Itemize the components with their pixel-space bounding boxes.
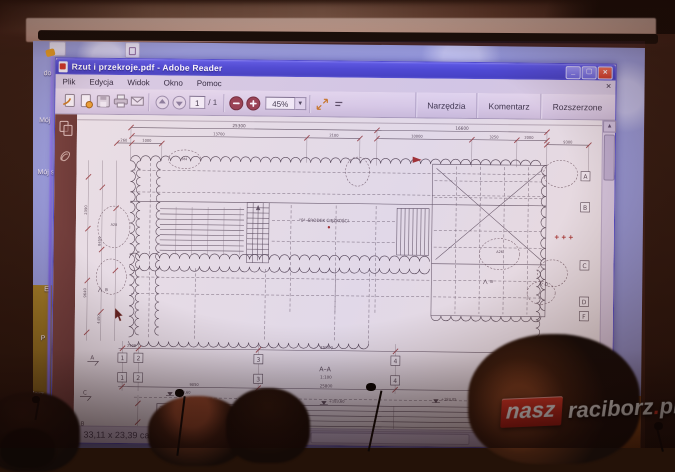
grid-number: 2: [136, 375, 140, 382]
cloud-note: M4: [182, 157, 187, 161]
microphone-head: [175, 389, 184, 397]
dim: 25800: [320, 345, 333, 350]
audience-head: [226, 388, 310, 463]
fit-page-icon[interactable]: [314, 95, 331, 112]
maximize-button[interactable]: ▢: [582, 66, 597, 79]
dim: 260: [120, 138, 128, 142]
print-icon[interactable]: [111, 93, 128, 110]
desktop-icon[interactable]: [125, 42, 140, 58]
level-mark: +183,60: [329, 399, 345, 403]
window-title: Rzut i przekroje.pdf - Adobe Reader: [72, 61, 223, 73]
watermark-raciborz: raciborz: [567, 394, 654, 424]
cloud-note: A28: [111, 223, 118, 227]
inner-mark: B: [490, 279, 493, 284]
grid-number: 1: [120, 375, 124, 382]
dim: 8450: [98, 236, 102, 246]
photo-of-projection: { "logo": {"nasz": "nasz", "raciborz": "…: [0, 0, 675, 448]
zoom-dropdown-button[interactable]: ▼: [295, 97, 306, 110]
grid-number: 3: [256, 376, 260, 383]
microphone-head: [654, 422, 663, 430]
dim: 16600: [455, 126, 469, 132]
page-number-input[interactable]: 1: [189, 96, 205, 109]
cloud-note: A26: [496, 250, 503, 254]
inner-mark: B: [105, 287, 108, 292]
zoom-in-icon[interactable]: [245, 94, 262, 111]
grid-letter: C: [582, 263, 586, 270]
next-page-icon[interactable]: [170, 94, 187, 111]
desktop-icon-label[interactable]: do: [44, 70, 52, 77]
grid-number: 4: [393, 358, 397, 365]
hide-toolbar-icon[interactable]: ✕: [606, 82, 612, 90]
convert-icon[interactable]: [77, 93, 94, 110]
menu-plik[interactable]: Plik: [55, 77, 82, 86]
grid-number: 2: [136, 355, 140, 362]
attachments-paperclip-icon[interactable]: [55, 144, 77, 170]
document-size-text: 33,11 x 23,39 cale: [83, 430, 156, 441]
desktop-icon[interactable]: [49, 41, 66, 56]
page-total: 1: [213, 98, 218, 107]
minimize-button[interactable]: _: [566, 66, 581, 79]
menu-edycja[interactable]: Edycja: [82, 77, 120, 86]
grid-letter: D: [582, 299, 587, 306]
dim: 13700: [213, 132, 225, 136]
audience-head: [0, 428, 55, 468]
tools-panel-button[interactable]: Narzędzia: [415, 92, 477, 118]
dim: 2500: [127, 344, 137, 348]
vertical-scrollbar-thumb[interactable]: [603, 134, 615, 180]
previous-page-icon[interactable]: [153, 93, 170, 110]
dim: 25300: [232, 123, 246, 129]
section-scale: 1:100: [320, 374, 332, 379]
zoom-out-icon[interactable]: [228, 94, 245, 111]
section-title: A–A: [319, 366, 331, 373]
dim: 1000: [142, 139, 152, 143]
page-separator: /: [208, 98, 210, 107]
watermark-nasz: nasz: [500, 396, 563, 428]
comment-panel-button[interactable]: Komentarz: [476, 93, 540, 119]
dim: 2000: [524, 136, 534, 140]
more-tools-icon[interactable]: [331, 95, 348, 112]
horizontal-scrollbar-thumb[interactable]: [310, 432, 469, 445]
scroll-up-icon[interactable]: ▲: [603, 120, 616, 132]
desktop-icon-glyph: [129, 47, 136, 55]
desktop-icon-label[interactable]: E: [44, 286, 49, 293]
open-icon[interactable]: [60, 92, 77, 109]
close-button[interactable]: ×: [598, 66, 613, 79]
pdf-file-icon: [59, 61, 68, 72]
menu-widok[interactable]: Widok: [120, 77, 156, 86]
section-mark: A: [90, 355, 94, 361]
grid-letter: F: [582, 314, 586, 321]
microphone-head: [32, 396, 40, 403]
desktop-icon-label[interactable]: Mój: [39, 117, 50, 124]
desktop-icon-badge: [45, 48, 55, 57]
grid-number: 1: [120, 355, 124, 362]
dim: 9300: [563, 140, 573, 144]
grid-number: 4: [393, 378, 397, 385]
dim: 3250: [489, 135, 499, 139]
dim: 10000: [411, 134, 423, 138]
dim: 4450: [97, 314, 101, 324]
microphone-head: [366, 383, 376, 391]
dim: 9640: [83, 287, 87, 297]
menu-pomoc[interactable]: Pomoc: [190, 78, 229, 87]
save-icon[interactable]: [94, 93, 111, 110]
dim: 2390: [84, 205, 88, 215]
dim: 9050: [190, 383, 200, 387]
dim: 2100: [329, 133, 339, 137]
email-icon[interactable]: [128, 93, 145, 110]
watermark-pl: pl: [659, 393, 675, 420]
desktop-icon-label[interactable]: P: [41, 335, 46, 342]
grid-letter: B: [583, 205, 587, 212]
extended-panel-button[interactable]: Rozszerzone: [541, 94, 614, 120]
inner-mark: D: [545, 282, 548, 287]
section-mark: C: [83, 390, 87, 396]
zoom-level-input[interactable]: 45%: [265, 97, 295, 110]
desktop-icon-label[interactable]: Mój s: [37, 169, 54, 176]
grid-number: 3: [256, 357, 260, 364]
dim: 25800: [320, 383, 333, 388]
level-mark: +183,05: [441, 398, 457, 402]
menu-okno[interactable]: Okno: [157, 78, 190, 87]
